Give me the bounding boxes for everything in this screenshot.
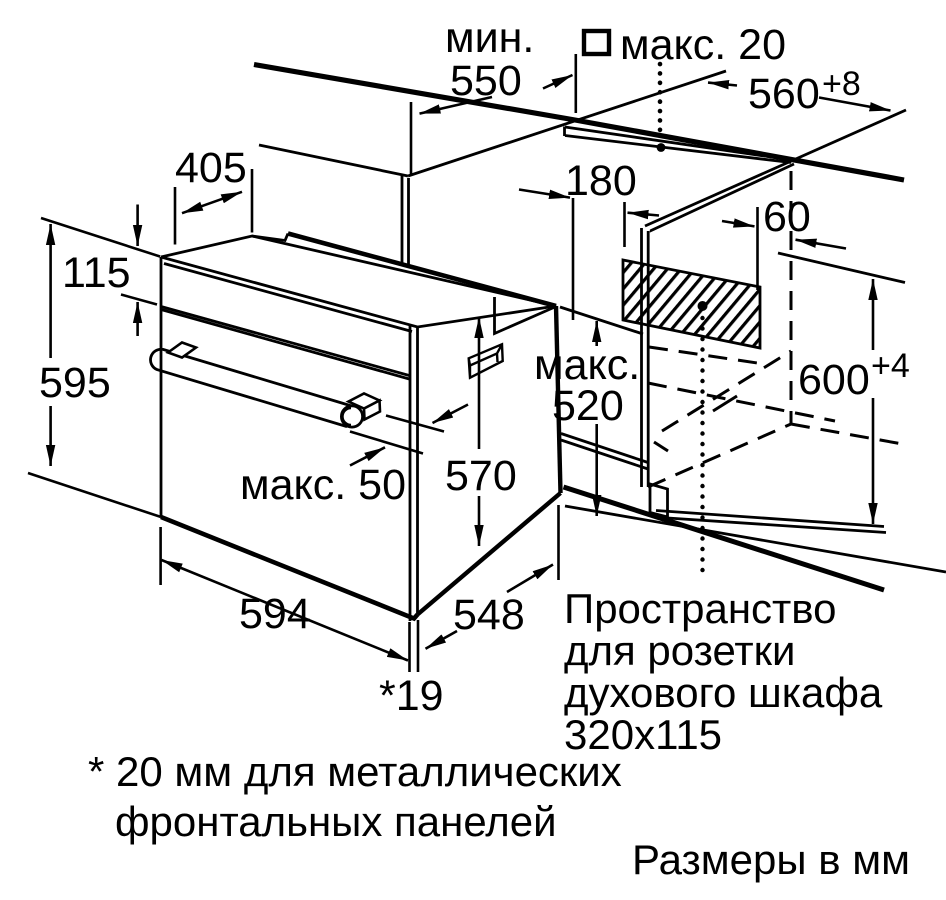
svg-text:548: 548: [453, 591, 525, 639]
svg-text:600: 600: [798, 356, 870, 404]
svg-text:405: 405: [175, 144, 247, 192]
svg-text:макс. 20: макс. 20: [620, 21, 786, 69]
svg-text:560: 560: [748, 70, 820, 118]
svg-text:180: 180: [565, 157, 637, 205]
svg-text:+8: +8: [822, 65, 861, 103]
svg-text:мин.: мин.: [445, 14, 534, 62]
svg-text:макс. 50: макс. 50: [240, 461, 406, 509]
svg-text:+4: +4: [871, 347, 910, 385]
svg-text:115: 115: [62, 249, 131, 297]
svg-text:духового шкафа: духового шкафа: [564, 669, 883, 716]
svg-text:для розетки: для розетки: [564, 627, 796, 674]
svg-text:фронтальных панелей: фронтальных панелей: [115, 798, 557, 845]
svg-text:570: 570: [445, 452, 517, 500]
svg-text:Пространство: Пространство: [564, 585, 837, 632]
svg-text:*19: *19: [379, 672, 444, 720]
svg-text:595: 595: [39, 359, 111, 407]
svg-text:520: 520: [552, 382, 624, 430]
svg-text:* 20 мм для металлических: * 20 мм для металлических: [88, 748, 622, 795]
svg-text:60: 60: [763, 193, 811, 241]
svg-text:Размеры в мм: Размеры в мм: [632, 836, 910, 883]
